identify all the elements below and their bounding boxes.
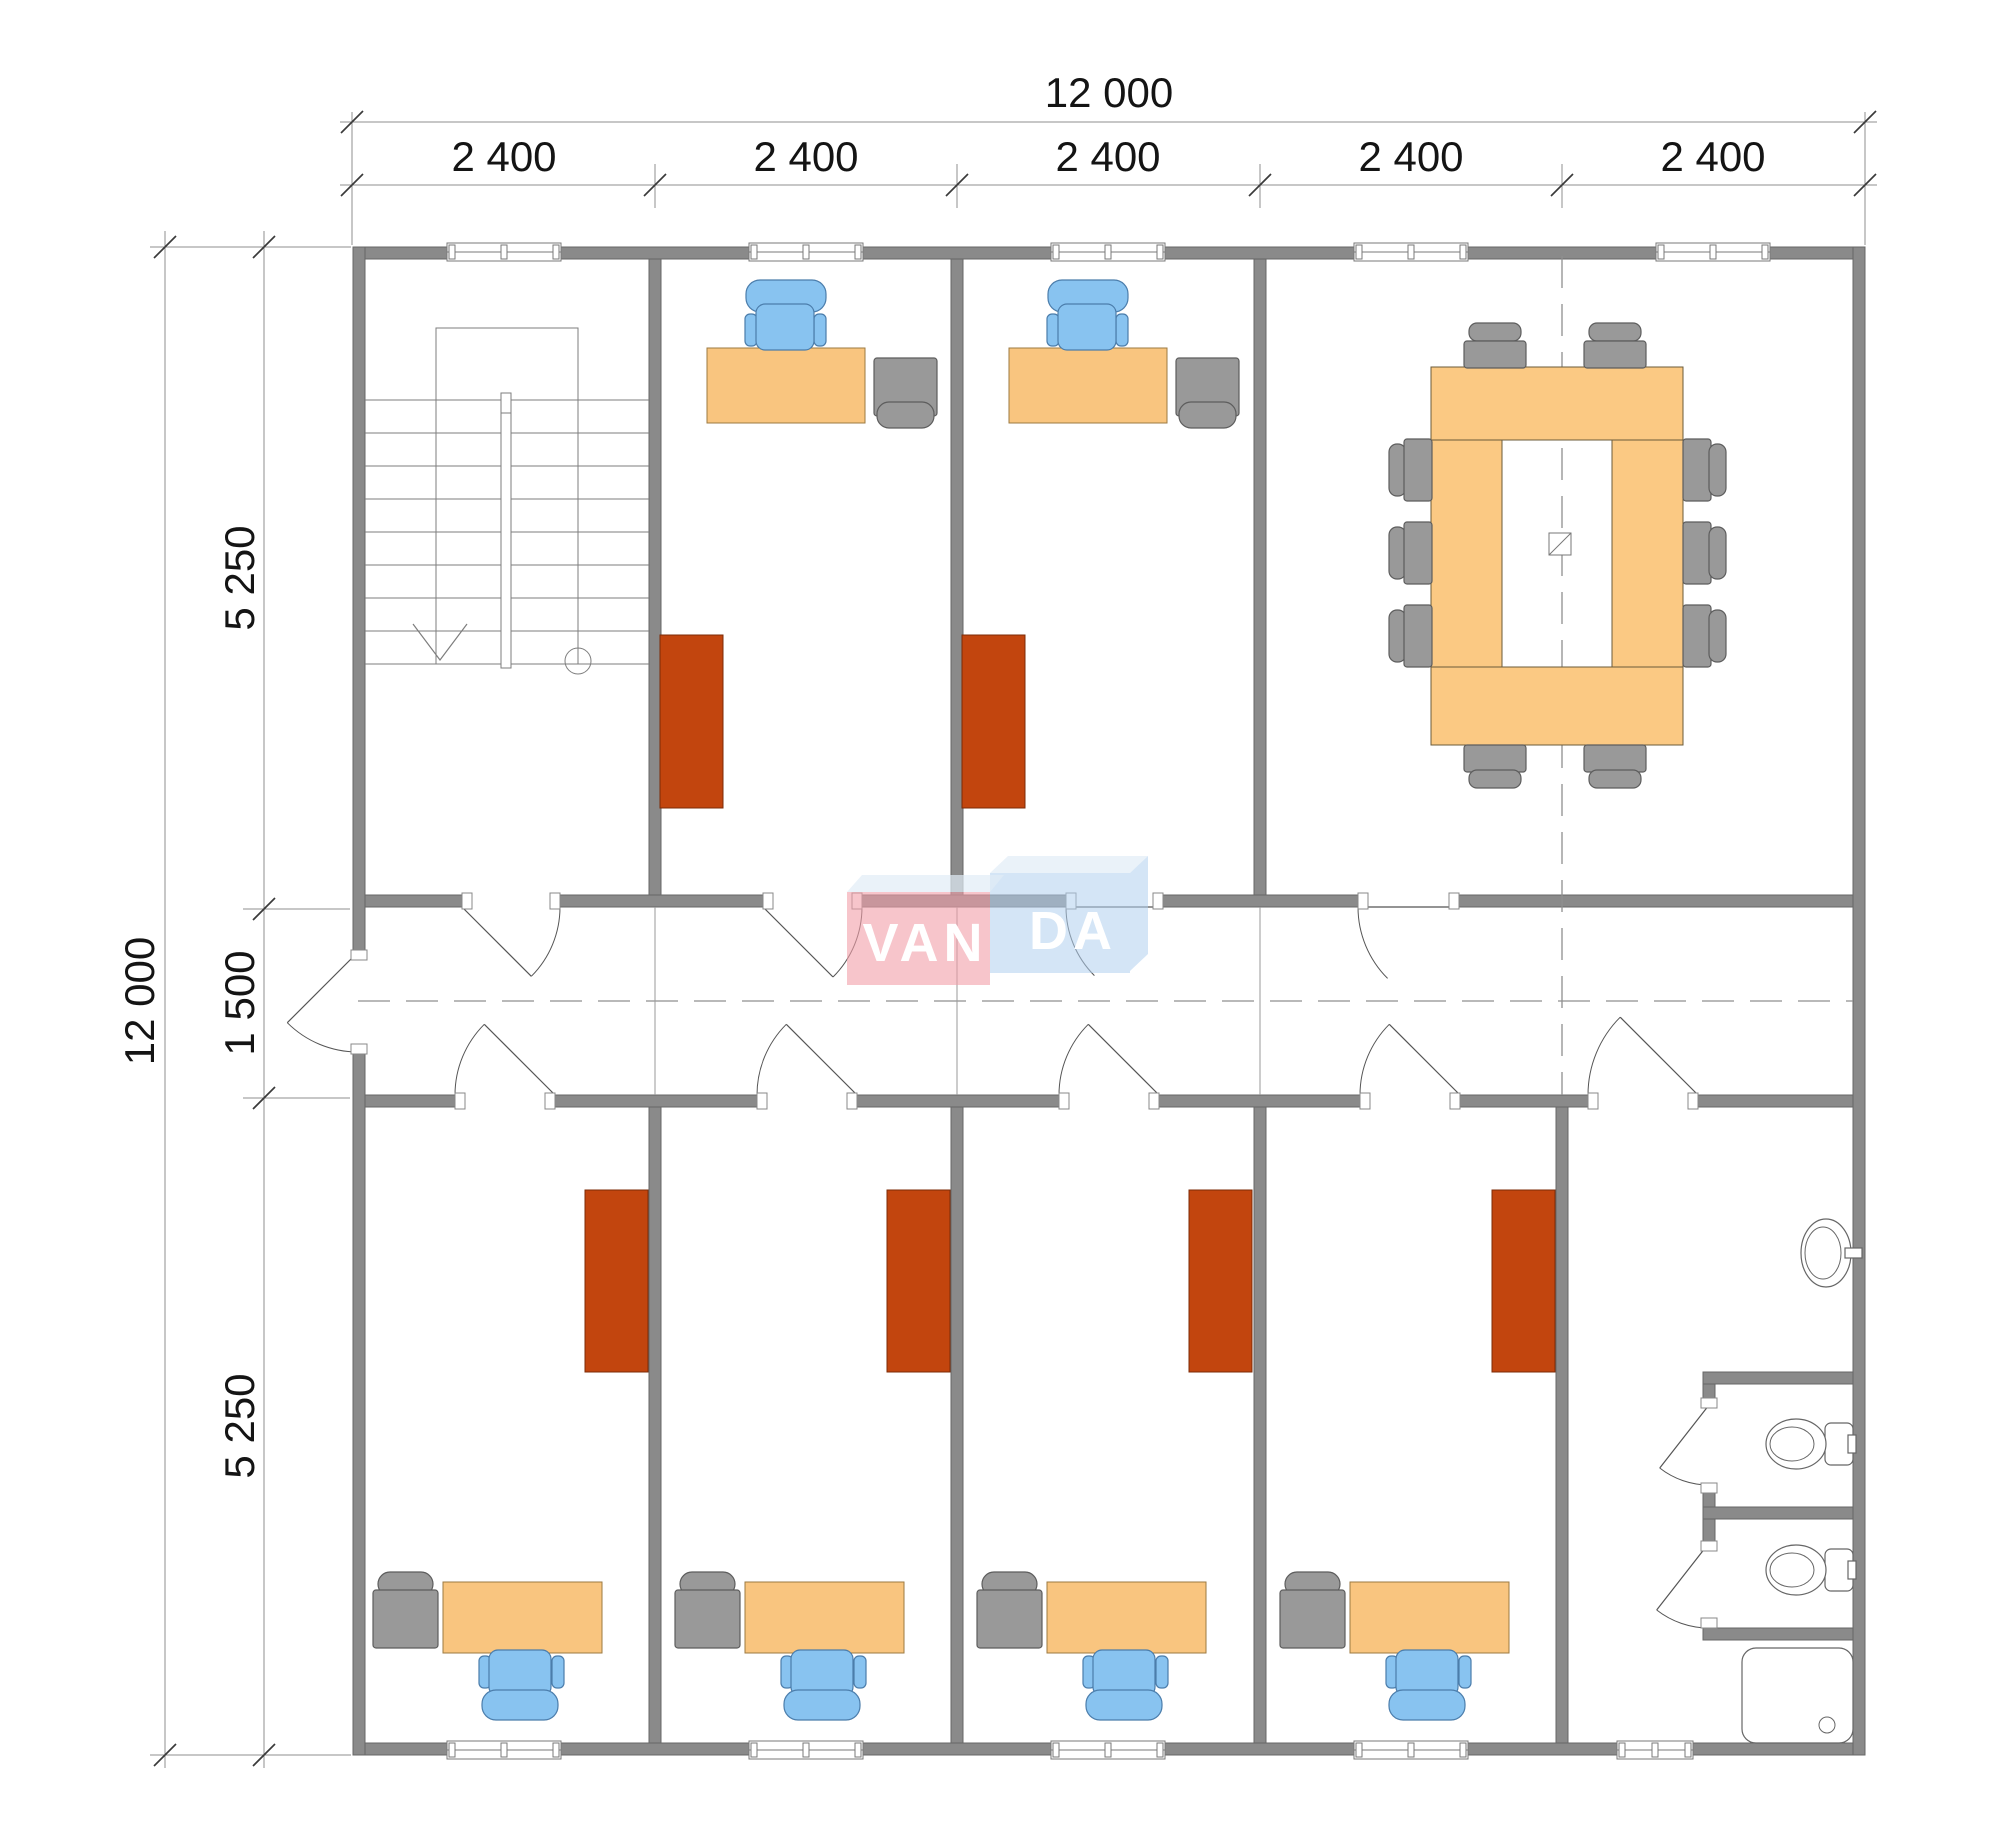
wall (1556, 1107, 1568, 1743)
window-mullion (1157, 245, 1163, 259)
wall (1698, 1095, 1853, 1107)
window-mullion (449, 1743, 455, 1757)
window-mullion (1408, 245, 1414, 259)
door-frame (550, 893, 560, 909)
door-leaf (1657, 1543, 1709, 1610)
door-frame (1149, 1093, 1159, 1109)
door-frame (847, 1093, 857, 1109)
door-frame (1059, 1093, 1069, 1109)
wall (951, 1107, 963, 1743)
office-chair (552, 1656, 564, 1688)
visitor-chair (1179, 402, 1236, 428)
logo-box-blue-side (1130, 856, 1148, 971)
visitor-chair (675, 1590, 740, 1648)
office-chair (745, 314, 757, 346)
office-chair (1086, 1690, 1162, 1720)
wall (951, 259, 963, 895)
desk (707, 348, 865, 423)
meeting-chair-backrest (1589, 323, 1641, 341)
office-chair (791, 1650, 853, 1696)
sink (1801, 1219, 1851, 1287)
door-leaf (462, 907, 531, 976)
wall (555, 1095, 757, 1107)
door-leaf (1660, 1405, 1709, 1468)
wall (1459, 895, 1853, 907)
dim-top-segment-label: 2 400 (1008, 136, 1208, 178)
logo-box-pink-top (847, 875, 1004, 892)
door-frame (1688, 1093, 1698, 1109)
sink-faucet (1845, 1248, 1862, 1258)
conference-table (1431, 440, 1502, 667)
toilet-bowl (1766, 1419, 1826, 1469)
stair-direction-arrow (413, 624, 467, 660)
door-frame (757, 1093, 767, 1109)
wall (1853, 247, 1865, 1755)
office-chair (814, 314, 826, 346)
dim-left-segment-label: 5 250 (219, 1276, 261, 1576)
window-mullion (803, 245, 809, 259)
meeting-chair (1683, 605, 1711, 667)
toilet-valve (1848, 1435, 1856, 1453)
wall (353, 1052, 365, 1755)
window-mullion (1053, 245, 1059, 259)
meeting-chair (1464, 745, 1526, 772)
desk (443, 1582, 602, 1653)
toilet-bowl (1766, 1545, 1826, 1595)
door-swing-arc (757, 1024, 786, 1095)
cabinet (585, 1190, 648, 1372)
logo-text-da: DA (1020, 904, 1126, 958)
door-swing-arc (1360, 1024, 1389, 1095)
office-chair (854, 1656, 866, 1688)
office-chair (1047, 314, 1059, 346)
meeting-chair (1404, 439, 1432, 501)
cabinet (660, 635, 723, 808)
dim-top-segment-label: 2 400 (706, 136, 906, 178)
office-chair (489, 1650, 551, 1696)
window-mullion (1460, 1743, 1466, 1757)
office-chair (1156, 1656, 1168, 1688)
window-mullion (1652, 1743, 1658, 1757)
door-swing-arc (455, 1024, 484, 1095)
meeting-chair-backrest (1709, 610, 1726, 662)
conference-table (1431, 667, 1683, 745)
door-leaf (763, 907, 833, 977)
wall (1460, 1095, 1588, 1107)
door-frame (351, 1044, 367, 1054)
door-swing-arc (287, 1023, 358, 1052)
meeting-chair-backrest (1469, 770, 1521, 788)
window-mullion (1408, 1743, 1414, 1757)
office-chair (1389, 1690, 1465, 1720)
dim-top-segment-label: 2 400 (404, 136, 604, 178)
door-frame (1360, 1093, 1370, 1109)
wall (353, 247, 365, 952)
meeting-chair (1404, 522, 1432, 584)
cabinet (1189, 1190, 1252, 1372)
cabinet (887, 1190, 950, 1372)
meeting-chair (1683, 439, 1711, 501)
window-mullion (553, 1743, 559, 1757)
office-chair (784, 1690, 860, 1720)
wall (1159, 1095, 1360, 1107)
door-frame (351, 950, 367, 960)
door-frame (455, 1093, 465, 1109)
logo-box-blue-top (990, 856, 1148, 873)
door-frame (1701, 1398, 1717, 1408)
window-mullion (1356, 1743, 1362, 1757)
door-frame (1358, 893, 1368, 909)
dim-top-segment-label: 2 400 (1311, 136, 1511, 178)
window-mullion (1356, 245, 1362, 259)
visitor-chair (977, 1590, 1042, 1648)
window-mullion (1685, 1743, 1691, 1757)
floor-plan-drawing (0, 0, 2000, 1848)
window-mullion (855, 245, 861, 259)
cabinet (1492, 1190, 1555, 1372)
door-swing-arc (1660, 1468, 1709, 1485)
door-swing-arc (531, 907, 560, 976)
floor-plan-canvas: 12 000 2 400 2 400 2 400 2 400 2 400 12 … (0, 0, 2000, 1848)
wall (1703, 1519, 1715, 1543)
wall (1254, 259, 1266, 895)
desk (745, 1582, 904, 1653)
door-swing-arc (1358, 907, 1388, 978)
door-frame (1450, 1093, 1460, 1109)
door-frame (1588, 1093, 1598, 1109)
window-mullion (449, 245, 455, 259)
office-chair (1093, 1650, 1155, 1696)
stair-rail (501, 393, 511, 668)
wall (649, 1107, 661, 1743)
wall (1703, 1372, 1853, 1384)
door-frame (1449, 893, 1459, 909)
wall (1163, 895, 1358, 907)
cabinet (962, 635, 1025, 808)
window-mullion (1658, 245, 1664, 259)
window-mullion (501, 245, 507, 259)
visitor-chair (1280, 1590, 1345, 1648)
dim-left-total-label: 12 000 (119, 851, 161, 1151)
window-mullion (1105, 1743, 1111, 1757)
window-mullion (803, 1743, 809, 1757)
window-mullion (1762, 245, 1768, 259)
window-mullion (553, 245, 559, 259)
meeting-chair-backrest (1469, 323, 1521, 341)
door-frame (1153, 893, 1163, 909)
door-leaf (1088, 1024, 1159, 1095)
window-mullion (751, 245, 757, 259)
meeting-chair-backrest (1709, 527, 1726, 579)
conference-table (1612, 440, 1683, 667)
office-chair (1396, 1650, 1458, 1696)
office-chair (482, 1690, 558, 1720)
dim-top-total-label: 12 000 (959, 72, 1259, 114)
door-frame (462, 893, 472, 909)
door-leaf (287, 952, 358, 1023)
door-leaf (1389, 1024, 1460, 1095)
wall (365, 1095, 455, 1107)
window-mullion (751, 1743, 757, 1757)
door-frame (1701, 1483, 1717, 1493)
wall (560, 895, 763, 907)
visitor-chair (877, 402, 934, 428)
window-mullion (1460, 245, 1466, 259)
meeting-chair (1584, 341, 1646, 368)
door-leaf (786, 1024, 857, 1095)
window-mullion (1710, 245, 1716, 259)
shower-tray (1742, 1648, 1853, 1743)
meeting-chair (1404, 605, 1432, 667)
office-chair (1116, 314, 1128, 346)
window-mullion (1105, 245, 1111, 259)
desk (1350, 1582, 1509, 1653)
door-leaf (484, 1024, 555, 1095)
window-mullion (1157, 1743, 1163, 1757)
door-swing-arc (1059, 1024, 1088, 1095)
door-frame (545, 1093, 555, 1109)
office-chair (1058, 304, 1116, 350)
logo-text-van: VAN (858, 916, 992, 970)
door-frame (1701, 1541, 1717, 1551)
wall (1703, 1628, 1853, 1640)
dim-top-segment-label: 2 400 (1613, 136, 1813, 178)
window-mullion (501, 1743, 507, 1757)
door-leaf (1620, 1017, 1698, 1095)
door-frame (1701, 1618, 1717, 1628)
meeting-chair (1683, 522, 1711, 584)
wall (365, 895, 462, 907)
office-chair (756, 304, 814, 350)
desk (1009, 348, 1167, 423)
wall (1703, 1507, 1853, 1519)
office-chair (1459, 1656, 1471, 1688)
wall (649, 259, 661, 895)
meeting-chair (1584, 745, 1646, 772)
wall (857, 1095, 1059, 1107)
meeting-chair-backrest (1709, 444, 1726, 496)
dim-left-segment-label: 1 500 (219, 853, 261, 1153)
toilet-valve (1848, 1561, 1856, 1579)
meeting-chair (1464, 341, 1526, 368)
desk (1047, 1582, 1206, 1653)
wall (1254, 1107, 1266, 1743)
window-mullion (1619, 1743, 1625, 1757)
door-swing-arc (1588, 1017, 1620, 1095)
meeting-chair-backrest (1589, 770, 1641, 788)
visitor-chair (373, 1590, 438, 1648)
dim-left-segment-label: 5 250 (219, 428, 261, 728)
window-mullion (855, 1743, 861, 1757)
window-mullion (1053, 1743, 1059, 1757)
door-frame (763, 893, 773, 909)
conference-table (1431, 367, 1683, 440)
